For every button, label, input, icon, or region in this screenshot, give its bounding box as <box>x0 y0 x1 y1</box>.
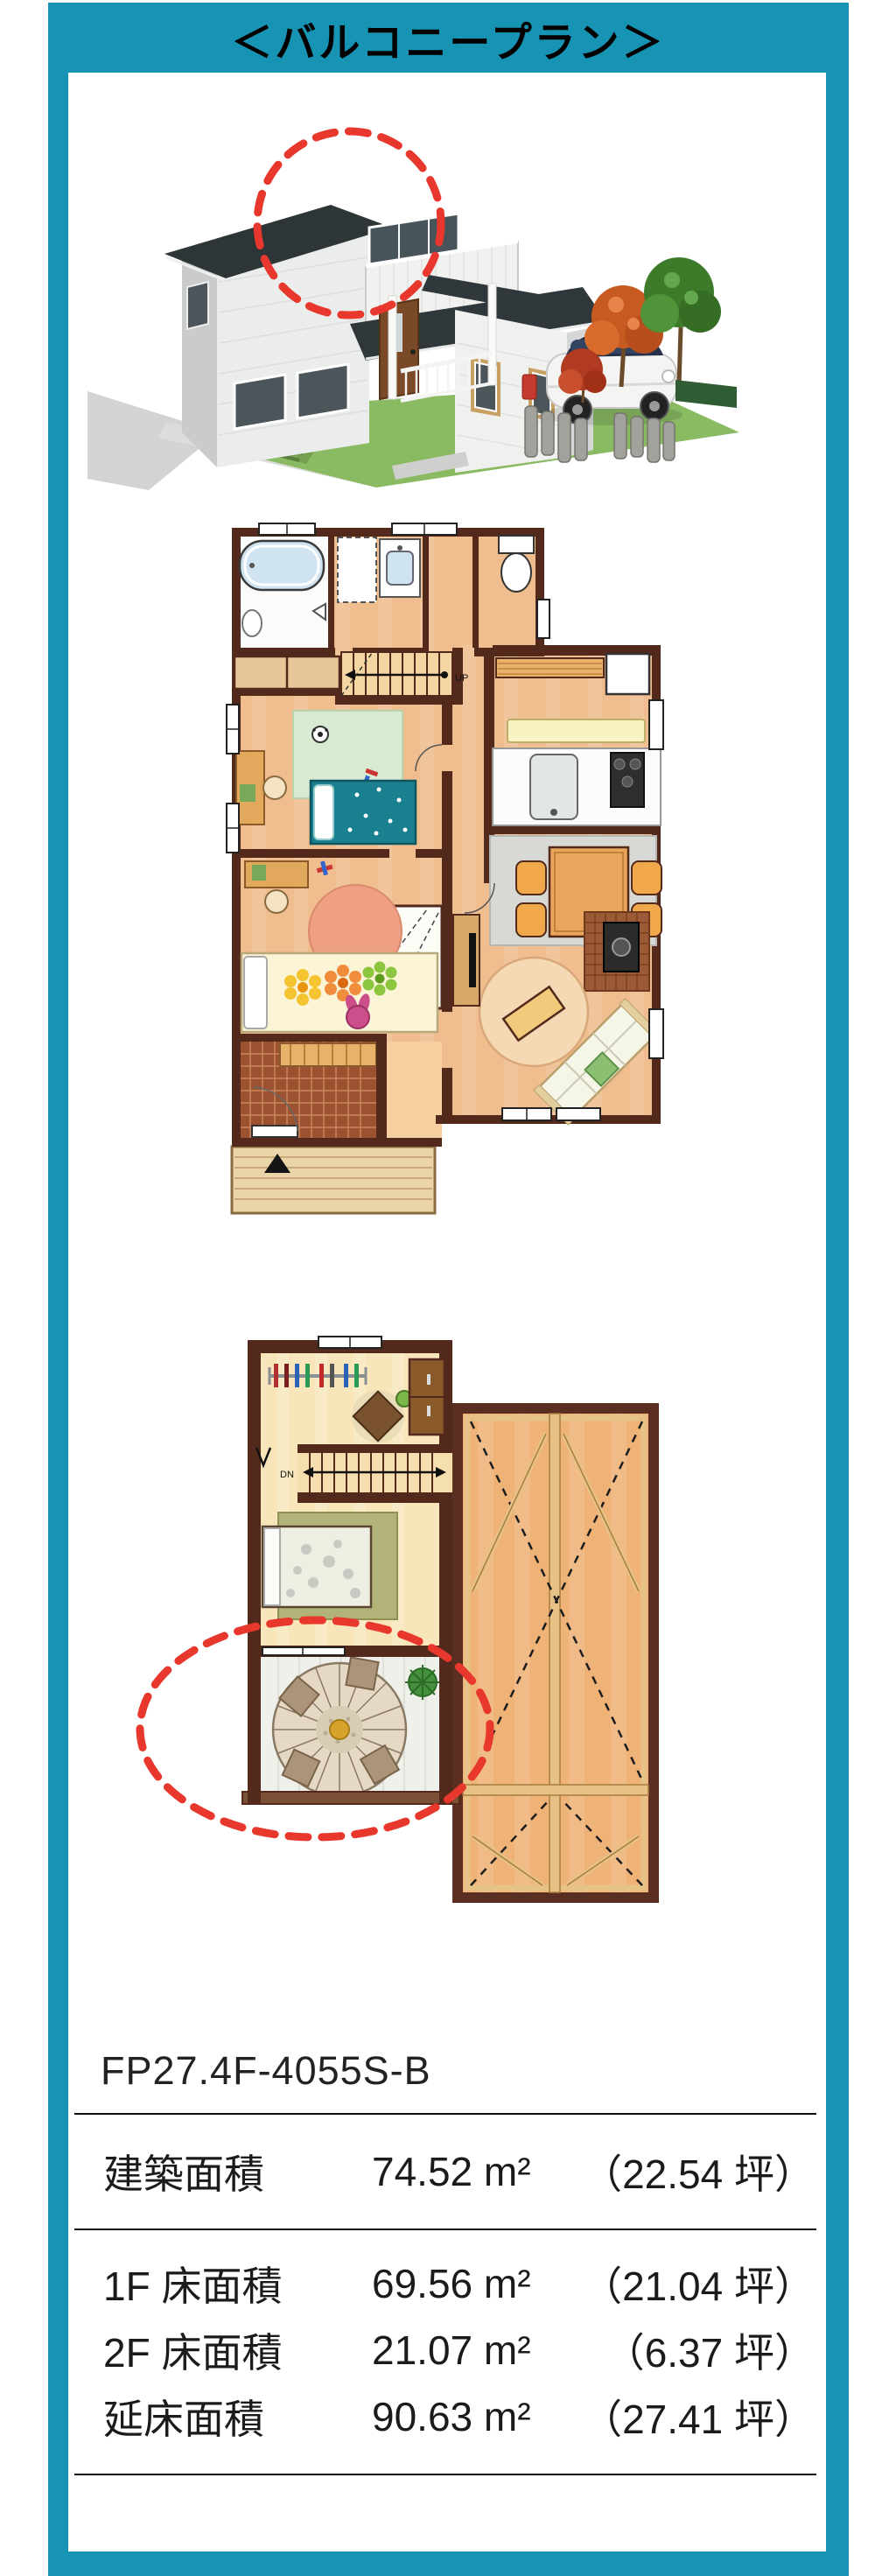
spec-label: 延床面積 <box>74 2388 372 2446</box>
porch-deck <box>232 1147 435 1213</box>
svg-text:UP: UP <box>455 673 468 684</box>
spec-area-m2: 74.52 m² <box>372 2148 577 2195</box>
genkan-entrance <box>238 1042 376 1138</box>
spec-area-tsubo: （22.54 坪） <box>577 2143 816 2200</box>
bath-stool-icon <box>242 610 262 636</box>
shoe-cabinet <box>280 1043 376 1066</box>
kitchen-counter <box>507 719 645 742</box>
spec-area-tsubo: （6.37 坪） <box>577 2321 816 2379</box>
headlight <box>662 370 675 383</box>
spec-row-total-area: 延床面積 90.63 m² （27.41 坪） <box>74 2390 816 2444</box>
front-door-leaf <box>252 1126 297 1137</box>
chair <box>265 890 288 913</box>
postbox <box>522 375 536 399</box>
spec-area-m2: 21.07 m² <box>372 2327 577 2374</box>
roof-area <box>452 1403 659 1903</box>
svg-text:DN: DN <box>280 1470 294 1480</box>
house-exterior-rendering <box>87 124 822 490</box>
stove-icon <box>611 753 644 807</box>
toilet-icon <box>499 536 534 592</box>
flyer-page: ＜バルコニープラン＞ <box>0 0 896 2576</box>
spec-area-tsubo: （27.41 坪） <box>577 2388 816 2446</box>
plan-model-code: FP27.4F-4055S-B <box>74 2039 816 2102</box>
spec-area-tsubo: （21.04 坪） <box>577 2255 816 2313</box>
spec-table: FP27.4F-4055S-B 建築面積 74.52 m² （22.54 坪） … <box>74 2039 816 2475</box>
tv-icon <box>469 933 476 987</box>
spec-label: 1F 床面積 <box>74 2255 372 2313</box>
kids-bed-teal <box>311 781 416 844</box>
refrigerator <box>606 654 649 694</box>
washer-space <box>338 537 376 602</box>
spec-label: 2F 床面積 <box>74 2321 372 2379</box>
kids-bed-flowers <box>241 953 437 1032</box>
bedroom-2f <box>262 1513 397 1619</box>
wood-stove <box>584 912 649 991</box>
potted-plant-icon <box>405 1665 440 1700</box>
first-floor-plan: UP <box>226 522 668 1222</box>
wardrobe <box>409 1359 444 1435</box>
window <box>234 375 285 429</box>
vanity-sink-icon <box>380 539 420 597</box>
spec-area-m2: 90.63 m² <box>372 2393 577 2440</box>
bathtub-icon <box>240 541 324 590</box>
spec-area-m2: 69.56 m² <box>372 2260 577 2307</box>
divider <box>74 2474 816 2475</box>
window <box>297 364 348 418</box>
balcony-2f <box>242 1657 459 1804</box>
spec-row-building-area: 建築面積 74.52 m² （22.54 坪） <box>74 2144 816 2199</box>
chair <box>263 776 286 799</box>
spec-row-1f-area: 1F 床面積 69.56 m² （21.04 坪） <box>74 2257 816 2311</box>
spec-label: 建築面積 <box>74 2143 372 2200</box>
plan-title: ＜バルコニープラン＞ <box>48 9 849 69</box>
spec-row-2f-area: 2F 床面積 21.07 m² （6.37 坪） <box>74 2323 816 2377</box>
second-floor-plan: DN <box>131 1311 691 1915</box>
stairs-1f: UP <box>341 652 468 696</box>
